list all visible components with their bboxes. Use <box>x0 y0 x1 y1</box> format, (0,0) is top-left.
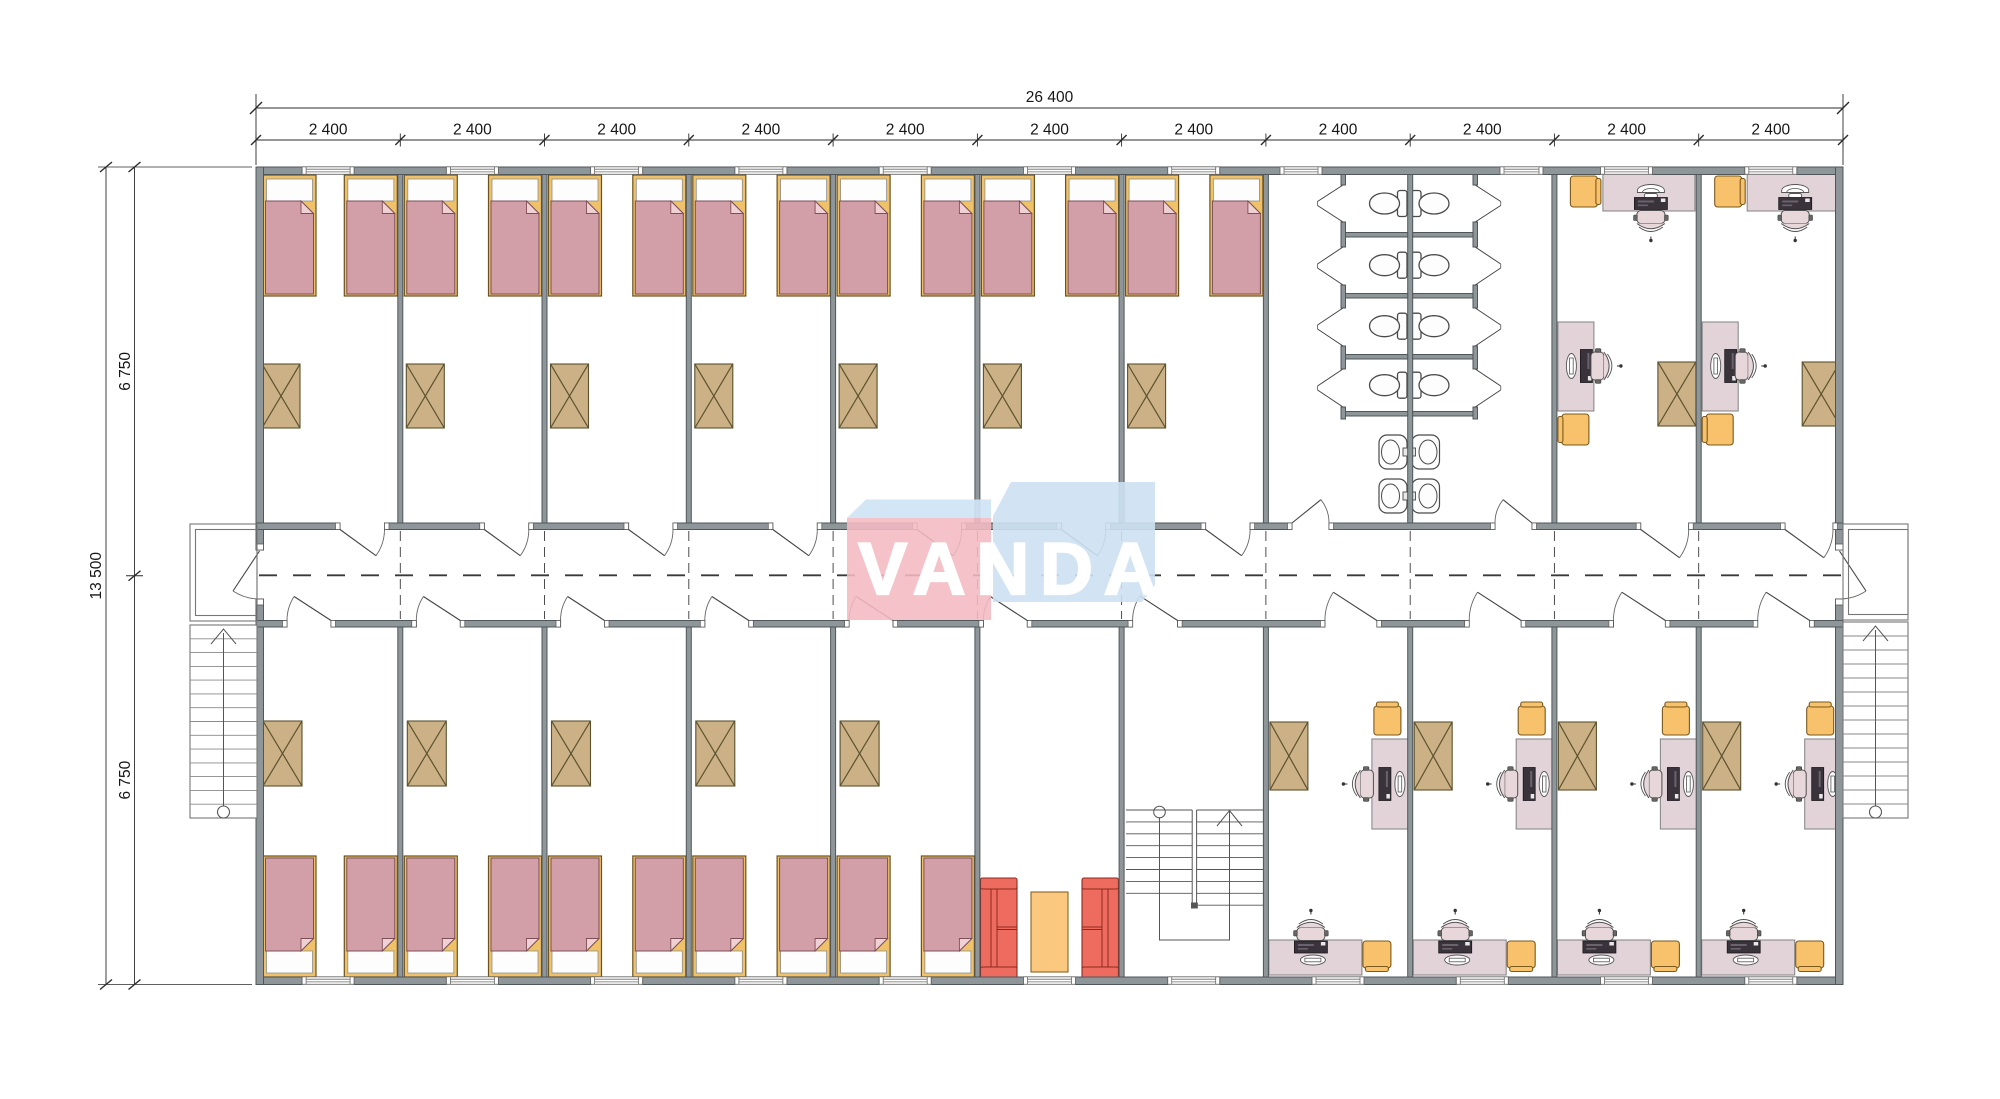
svg-text:2 400: 2 400 <box>309 122 348 139</box>
svg-text:2 400: 2 400 <box>1319 122 1358 139</box>
svg-text:2 400: 2 400 <box>1463 122 1502 139</box>
svg-text:2 400: 2 400 <box>886 122 925 139</box>
svg-text:2 400: 2 400 <box>597 122 636 139</box>
svg-text:2 400: 2 400 <box>742 122 781 139</box>
svg-text:2 400: 2 400 <box>1607 122 1646 139</box>
svg-text:VANDA: VANDA <box>858 529 1167 610</box>
svg-text:26 400: 26 400 <box>1026 89 1074 106</box>
svg-text:2 400: 2 400 <box>453 122 492 139</box>
svg-text:2 400: 2 400 <box>1174 122 1213 139</box>
svg-text:6 750: 6 750 <box>117 352 134 391</box>
svg-text:2 400: 2 400 <box>1030 122 1069 139</box>
svg-text:2 400: 2 400 <box>1751 122 1790 139</box>
svg-text:13 500: 13 500 <box>88 552 105 600</box>
svg-text:6 750: 6 750 <box>117 760 134 799</box>
